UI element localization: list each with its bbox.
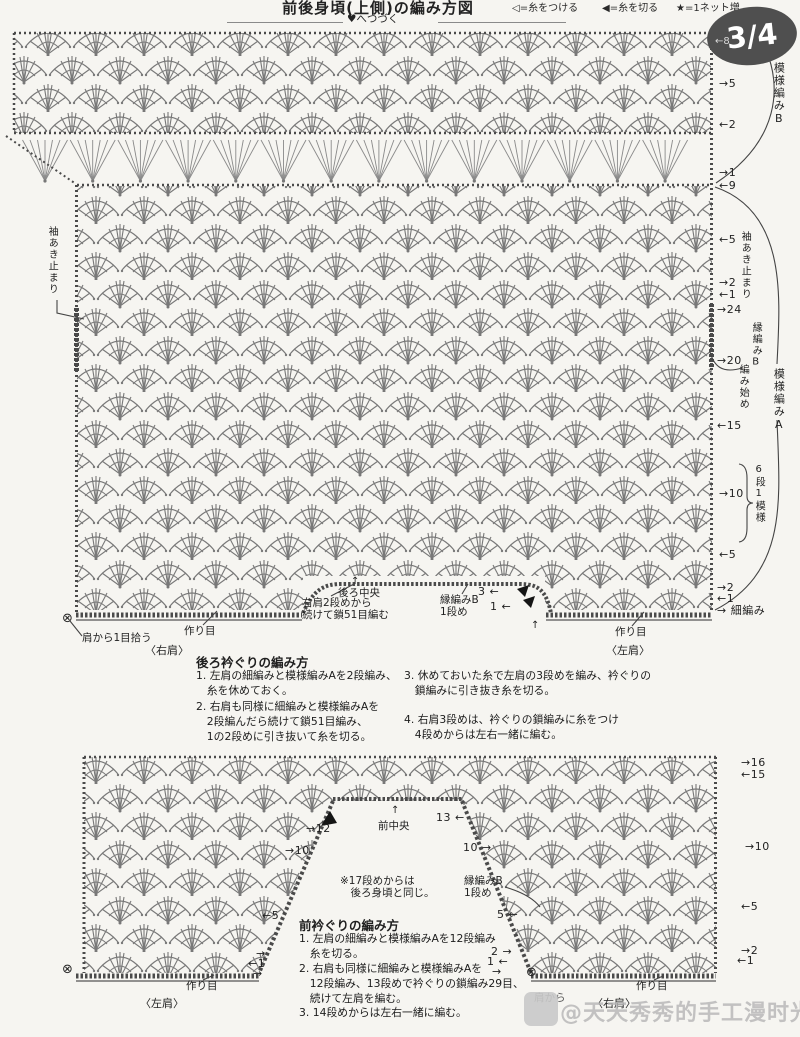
row-mark: ←1 — [737, 955, 754, 967]
edge-b-start-label: 縁編みB — [750, 322, 761, 369]
row-mark: ←15 — [741, 769, 766, 781]
instruction-step: 2. 右肩も同様に細編みと模様編みAを 12段編み、13段めで衿ぐりの鎖編み29… — [299, 961, 524, 1006]
six-row-repeat-label: 6段1模様 — [753, 464, 764, 524]
instruction-step: 3. 休めておいた糸で左肩の3段めを編み、衿ぐりの 鎖編みに引き抜き糸を切る。 — [404, 668, 651, 698]
start-stitch-mark: ⊗ — [62, 963, 73, 978]
row-8-mark: ←8 — [715, 36, 730, 47]
cast-on-label: 作り目 — [186, 981, 218, 993]
instruction-step: 1. 左肩の細編みと模様編みAを12段編み 糸を切る。 — [299, 931, 496, 961]
edge-row-3-mark: 3 ← — [478, 586, 499, 598]
row-13-mark: 13 ← — [436, 812, 465, 824]
row-mark: 5 ← — [497, 909, 518, 921]
row-mark: →10 — [745, 841, 770, 853]
cast-on-label: 作り目 — [615, 627, 647, 639]
row-mark: →10 — [285, 845, 310, 857]
up-arrow-icon: ↑ — [531, 620, 539, 631]
back-center-label: 後ろ中央 — [338, 588, 380, 600]
pattern-b-label: 模様編みB — [772, 62, 784, 127]
legend-attach-yarn: ◁=糸をつける — [512, 3, 578, 14]
edge-b-start-label2: 編み始め — [737, 364, 748, 410]
pattern-page: 前後身頃(上側)の編み方図 ◁=糸をつける ◀=糸を切る ★=1ネット増 3/4… — [0, 0, 800, 1037]
up-arrow-icon: ↑ — [351, 576, 359, 587]
row-mark: ←1 — [719, 289, 736, 301]
row-mark: ←2 — [719, 119, 736, 131]
divider-line — [438, 22, 566, 23]
start-stitch-mark: ⊗ — [526, 966, 537, 981]
left-shoulder-label: 〈左肩〉 — [140, 998, 184, 1010]
instruction-step: 3. 14段めからは左右一緒に編む。 — [299, 1005, 467, 1020]
edge-row-1-mark: 1 ← — [490, 601, 511, 613]
row-mark: ←5 — [741, 901, 758, 913]
cast-on-label: 作り目 — [636, 981, 668, 993]
start-stitch-mark: ⊗ — [62, 612, 73, 627]
row-mark: ←5 — [262, 910, 279, 922]
watermark-avatar — [524, 992, 558, 1026]
row-mark: ←5 — [719, 549, 736, 561]
row-mark: →5 — [719, 78, 736, 90]
row-mark: ←15 — [717, 420, 742, 432]
row-mark: ←5 — [719, 234, 736, 246]
up-arrow-icon: ↑ — [391, 805, 399, 816]
row-mark: →24 — [717, 304, 742, 316]
instruction-step: 2. 右肩も同様に細編みと模様編みAを 2段編んだら続けて鎖51目編み、 1の2… — [196, 699, 379, 744]
cast-on-label: 作り目 — [184, 626, 216, 638]
row-mark: → — [253, 968, 263, 980]
pick-up-label: 肩から1目拾う — [82, 633, 152, 645]
front-center-label: 前中央 — [378, 821, 410, 833]
row-12-mark: →12 — [306, 823, 331, 835]
sleeve-stop-left-label: 袖あき止まり — [46, 226, 57, 295]
right-shoulder-label: 〈右肩〉 — [145, 645, 189, 657]
legend-cut-yarn: ◀=糸を切る — [602, 3, 658, 14]
row-mark: →1 — [719, 167, 736, 179]
row-mark: ←9 — [719, 180, 736, 192]
watermark-text: @天天秀秀的手工漫时光 — [560, 995, 800, 1027]
divider-line — [227, 22, 343, 23]
row-mark: 10 → — [463, 842, 492, 854]
edge-b-row1-label: 縁編みB 1段め — [464, 876, 503, 900]
continue-note: ♥へつづく — [347, 14, 398, 26]
row17-note: ※17段めからは 後ろ身頃と同じ。 — [340, 876, 435, 900]
edge-b-row1-label: 縁編みB 1段め — [440, 595, 479, 619]
pattern-a-label: 模様編みA — [772, 368, 784, 433]
instruction-step: 1. 左肩の細編みと模様編みAを2段編み、 糸を休めておく。 — [196, 668, 397, 698]
left-shoulder-label: 〈左肩〉 — [606, 645, 650, 657]
sleeve-stop-right-label: 袖あき止まり — [739, 231, 750, 300]
sc-row-label: → 細編み — [717, 605, 765, 617]
row-mark: →10 — [719, 488, 744, 500]
chain-51-note: 右肩2段めから 続けて鎖51目編む — [302, 598, 389, 622]
instruction-step: 4. 右肩3段めは、衿ぐりの鎖編みに糸をつけ 4段めからは左右一緒に編む。 — [404, 712, 619, 742]
